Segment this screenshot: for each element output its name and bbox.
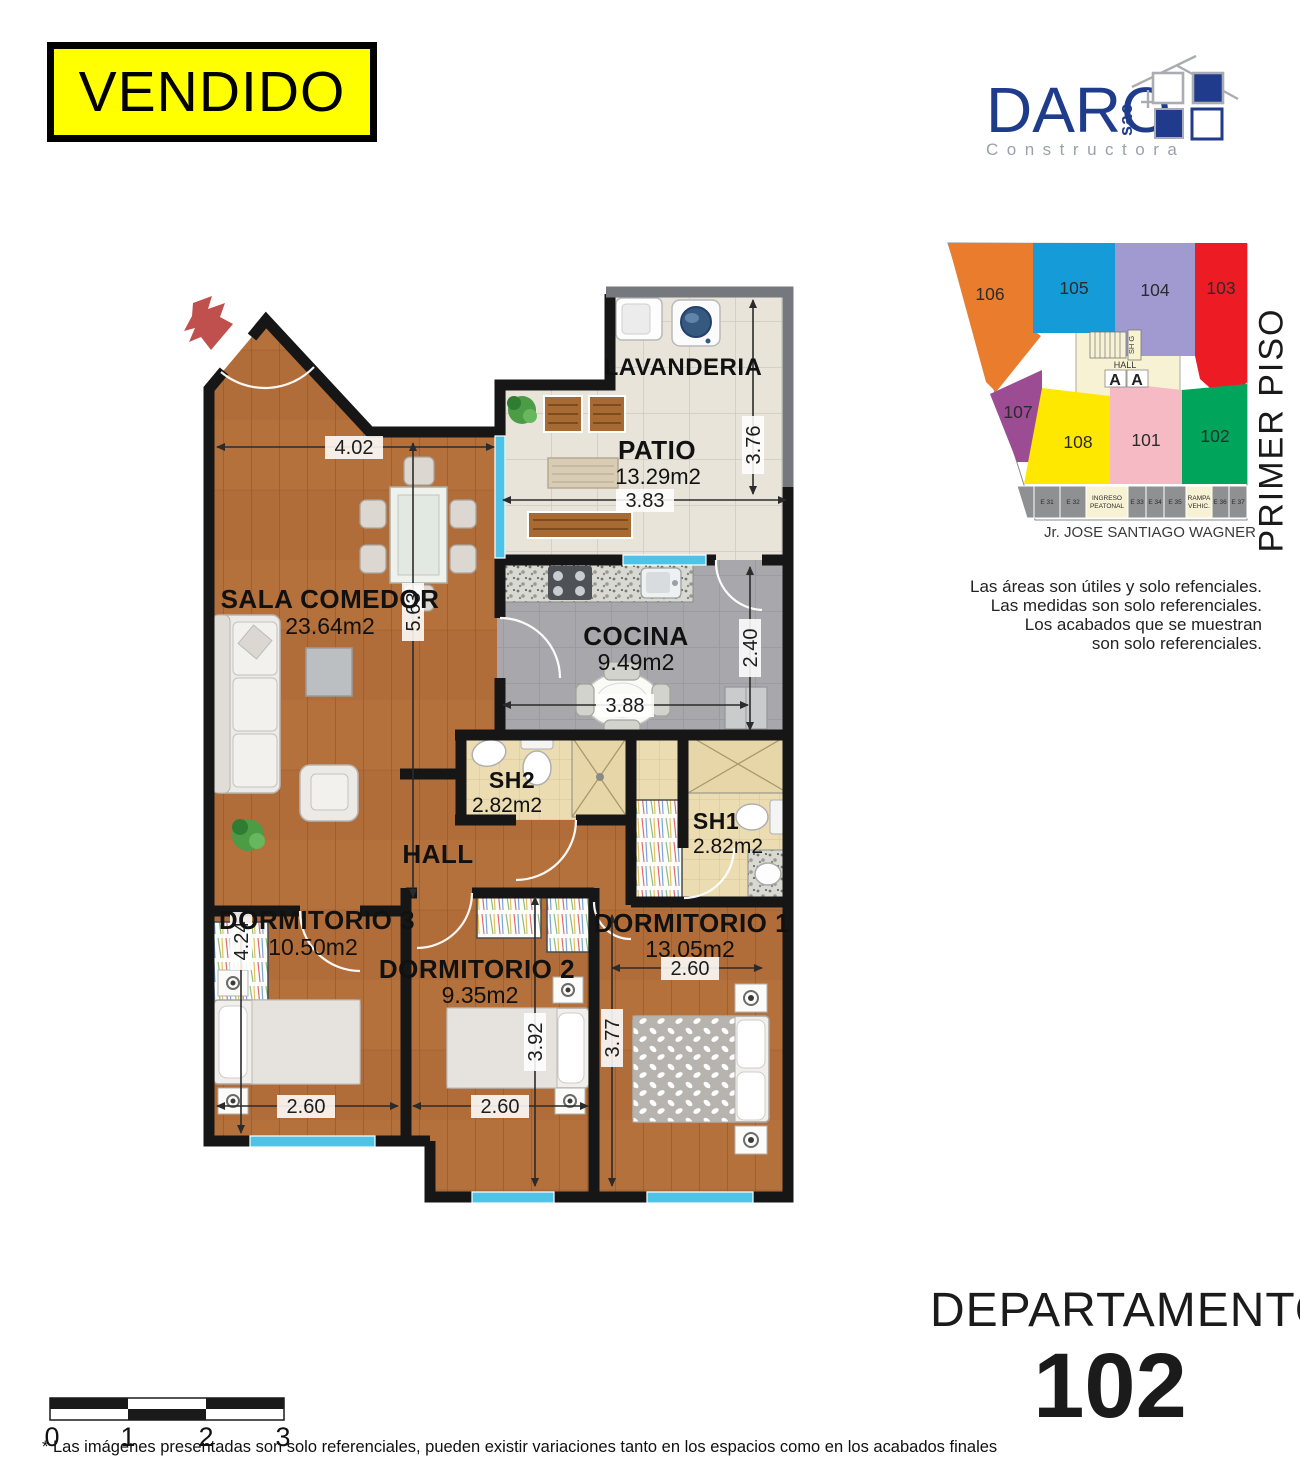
- unit-number-102: 102: [1200, 426, 1229, 446]
- room-area-dorm3: 10.50m2: [268, 934, 358, 960]
- sold-badge-label: VENDIDO: [79, 59, 346, 125]
- closet-dorm1: [633, 800, 682, 902]
- room-label-sh2: SH2: [489, 767, 535, 793]
- disclaimer-line: Las áreas son útiles y solo refenciales.: [950, 577, 1262, 596]
- unit-number-108: 108: [1063, 432, 1092, 452]
- parking-cell: PEATONAL: [1090, 503, 1124, 510]
- room-label-hall: HALL: [402, 839, 473, 869]
- unit-number-104: 104: [1140, 280, 1169, 300]
- disclaimer-text: Las áreas son útiles y solo refenciales.…: [950, 577, 1262, 653]
- logo-tagline: Constructora: [986, 140, 1185, 160]
- street-label: Jr. JOSE SANTIAGO WAGNER: [1000, 524, 1300, 541]
- parking-cell: E 35: [1168, 499, 1182, 506]
- house-logo-icon: [1130, 52, 1250, 146]
- room-label-dorm2: DORMITORIO 2: [379, 954, 575, 984]
- unit-number-106: 106: [975, 284, 1004, 304]
- room-area-cocina: 9.49m2: [598, 649, 675, 675]
- dim-dorm1-height: 3.77: [602, 1019, 624, 1058]
- window-dorm1: [647, 1192, 753, 1203]
- disclaimer-line: Las medidas son solo referenciales.: [950, 596, 1262, 615]
- dim-sala-width: 4.02: [335, 437, 374, 459]
- room-area-sala: 23.64m2: [285, 613, 375, 639]
- dim-dorm3-width: 2.60: [287, 1096, 326, 1118]
- floor-level-label: PRIMER PISO: [1253, 308, 1292, 553]
- section-mark-a1: A: [1109, 372, 1121, 389]
- dim-patio-width: 3.83: [626, 490, 665, 512]
- dim-dorm2-height: 3.92: [525, 1023, 547, 1062]
- key-plan-hall-label: HALL: [1114, 360, 1137, 370]
- dim-dorm2-width: 2.60: [481, 1096, 520, 1118]
- parking-cell: INGRESO: [1092, 495, 1122, 502]
- apartment-title-label: DEPARTAMENTO: [930, 1283, 1290, 1338]
- window-dorm3: [250, 1136, 375, 1147]
- company-logo: DARO sac Constructora: [980, 52, 1270, 172]
- footnote-text: * Las imágenes presentadas son solo refe…: [42, 1437, 997, 1457]
- dim-patio-height: 3.76: [743, 426, 765, 465]
- unit-number-107: 107: [1003, 402, 1032, 422]
- flyer-canvas: VENDIDO DARO sac Constructora: [0, 0, 1300, 1462]
- room-label-sala: SALA COMEDOR: [221, 584, 440, 614]
- room-label-patio: PATIO: [618, 435, 696, 465]
- window-cocina: [623, 555, 706, 565]
- dim-cocina-height: 2.40: [740, 629, 762, 668]
- apartment-number: 102: [930, 1340, 1290, 1432]
- parking-cell: E 34: [1148, 499, 1162, 506]
- parking-cell: E 33: [1130, 499, 1144, 506]
- section-mark-a2: A: [1131, 372, 1143, 389]
- unit-number-101: 101: [1131, 430, 1160, 450]
- window-patio-glass: [495, 436, 505, 558]
- closet-dorm2-b: [547, 890, 589, 952]
- key-plan: SH G HALL A A 106 105 104 103 107 108 10…: [938, 236, 1252, 538]
- room-label-sh1: SH1: [693, 808, 739, 834]
- room-area-patio: 13.29m2: [615, 464, 701, 489]
- room-label-cocina: COCINA: [583, 621, 689, 651]
- apartment-title: DEPARTAMENTO 102: [930, 1283, 1290, 1432]
- parking-cell: E 37: [1231, 499, 1245, 506]
- parking-cell: E 36: [1213, 499, 1227, 506]
- unit-number-105: 105: [1059, 278, 1088, 298]
- room-area-dorm1: 13.05m2: [645, 936, 735, 962]
- parking-cell: E 32: [1066, 499, 1080, 506]
- room-area-sh1: 2.82m2: [693, 835, 763, 858]
- room-area-sh2: 2.82m2: [472, 794, 542, 817]
- room-area-dorm2: 9.35m2: [442, 982, 519, 1008]
- dim-cocina-width: 3.88: [606, 695, 645, 717]
- disclaimer-line: Los acabados que se muestran: [950, 615, 1262, 634]
- sold-badge: VENDIDO: [47, 42, 377, 142]
- entrance-arrow-icon: [184, 296, 233, 350]
- room-label-dorm3: DORMITORIO 3: [219, 905, 415, 935]
- parking-cell: VEHIC.: [1188, 503, 1210, 510]
- parking-cell: E 31: [1040, 499, 1054, 506]
- closet-dorm2-a: [477, 892, 541, 938]
- key-plan-unit-103: [1195, 243, 1247, 404]
- disclaimer-line: son solo referenciales.: [950, 634, 1262, 653]
- parking-cell: RAMPA: [1188, 495, 1211, 502]
- unit-number-103: 103: [1206, 278, 1235, 298]
- window-dorm2: [472, 1192, 554, 1203]
- room-label-dorm1: DORMITORIO 1: [594, 908, 790, 938]
- room-label-lavanderia: LAVANDERIA: [604, 354, 763, 381]
- floor-plan: 4.02 5.63 3.83 3.76 2.40 3.88 4.24 2.60 …: [178, 268, 808, 1220]
- key-plan-stairs-label: SH G: [1127, 336, 1136, 355]
